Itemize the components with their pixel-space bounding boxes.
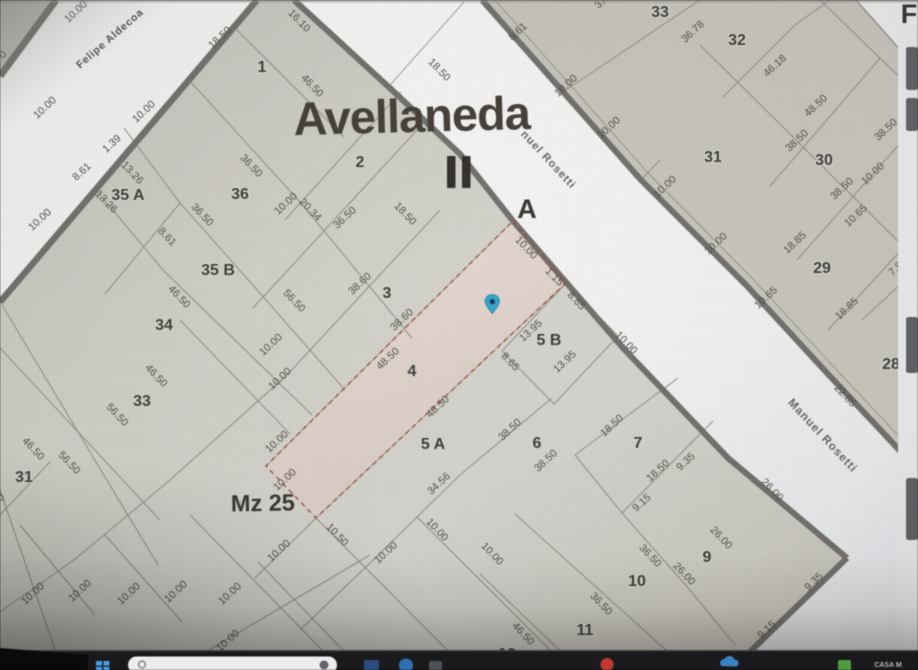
- svg-text:CASA M: CASA M: [874, 662, 902, 669]
